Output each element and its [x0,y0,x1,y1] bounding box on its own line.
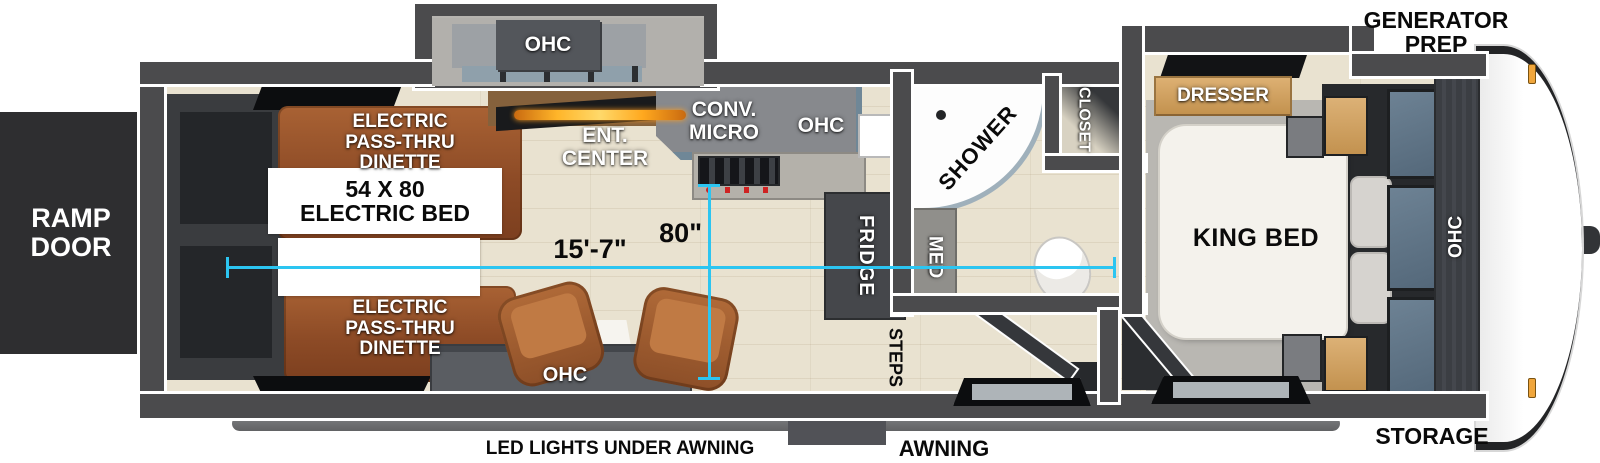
shower-head [936,110,946,120]
wall-entry-divider [1100,310,1118,402]
garage-left-window [180,112,272,224]
garage-bottom-ohc-label: OHC [520,358,610,394]
wardrobe-wood-cubby-top [1326,98,1366,154]
wall-bedroom-left [1122,26,1142,314]
rv-floorplan: RAMP DOOR ELECTRIC PASS-THRU DINETTE 54 … [0,0,1600,463]
bed-pillow-bottom [1350,252,1392,324]
dresser-label: DRESSER [1156,78,1290,114]
length-line [228,266,1116,269]
dinette-bottom-label: ELECTRIC PASS-THRU DINETTE [298,296,502,362]
bedroom-bottom-window [1151,376,1311,404]
wardrobe-mirror-top [1390,92,1434,176]
closet-label: CLOSET [1064,78,1104,160]
stove-burners [700,158,778,184]
wall-left [140,62,164,418]
led-lights-label: LED LIGHTS UNDER AWNING [450,438,790,460]
bed-pillow-top [1350,176,1392,248]
storage-label: STORAGE [1358,422,1506,450]
wardrobe-wood-cubby-bottom [1326,338,1366,390]
slideout-ohc-label: OHC [496,20,600,70]
width-tick-bottom [698,377,720,380]
length-tick-right [1113,257,1116,278]
nightstand-top [1288,118,1322,156]
length-label: 15'-7" [520,234,660,264]
bedroom-tv [1160,52,1308,78]
fridge-label: FRIDGE [826,194,904,318]
generator-prep-label: GENERATOR PREP [1366,6,1506,58]
bedroom-ohc-label: OHC [1436,72,1478,402]
width-line [708,186,711,380]
med-cabinet-label: MED [913,210,955,304]
conv-micro-label: CONV. MICRO [662,96,786,148]
nightstand-bottom [1284,336,1320,380]
king-bed-label: KING BED [1176,218,1336,258]
ramp-door-label: RAMP DOOR [0,112,142,354]
width-label: 80" [644,218,702,248]
length-tick-left [226,257,229,278]
kitchen-ohc-label: OHC [784,108,858,144]
awning-label: AWNING [878,436,1010,462]
dinette-top-label: ELECTRIC PASS-THRU DINETTE [292,110,508,176]
steps-label: STEPS [882,318,908,398]
entry-step-well [953,378,1091,406]
fireplace-glow [514,110,686,120]
width-tick-top [698,184,720,187]
clearance-light-top [1528,64,1536,84]
wall-bedroom-raised-top [1122,26,1374,52]
electric-bed-label: 54 X 80 ELECTRIC BED [268,170,502,232]
clearance-light-bottom [1528,378,1536,398]
wardrobe-mirror-bottom [1390,300,1434,394]
recliner-chair-right [630,284,742,395]
stove-knobs [706,187,772,193]
awning-bar [232,416,1340,431]
wall-top-left [140,62,432,84]
wardrobe-mirror-middle [1390,188,1434,288]
